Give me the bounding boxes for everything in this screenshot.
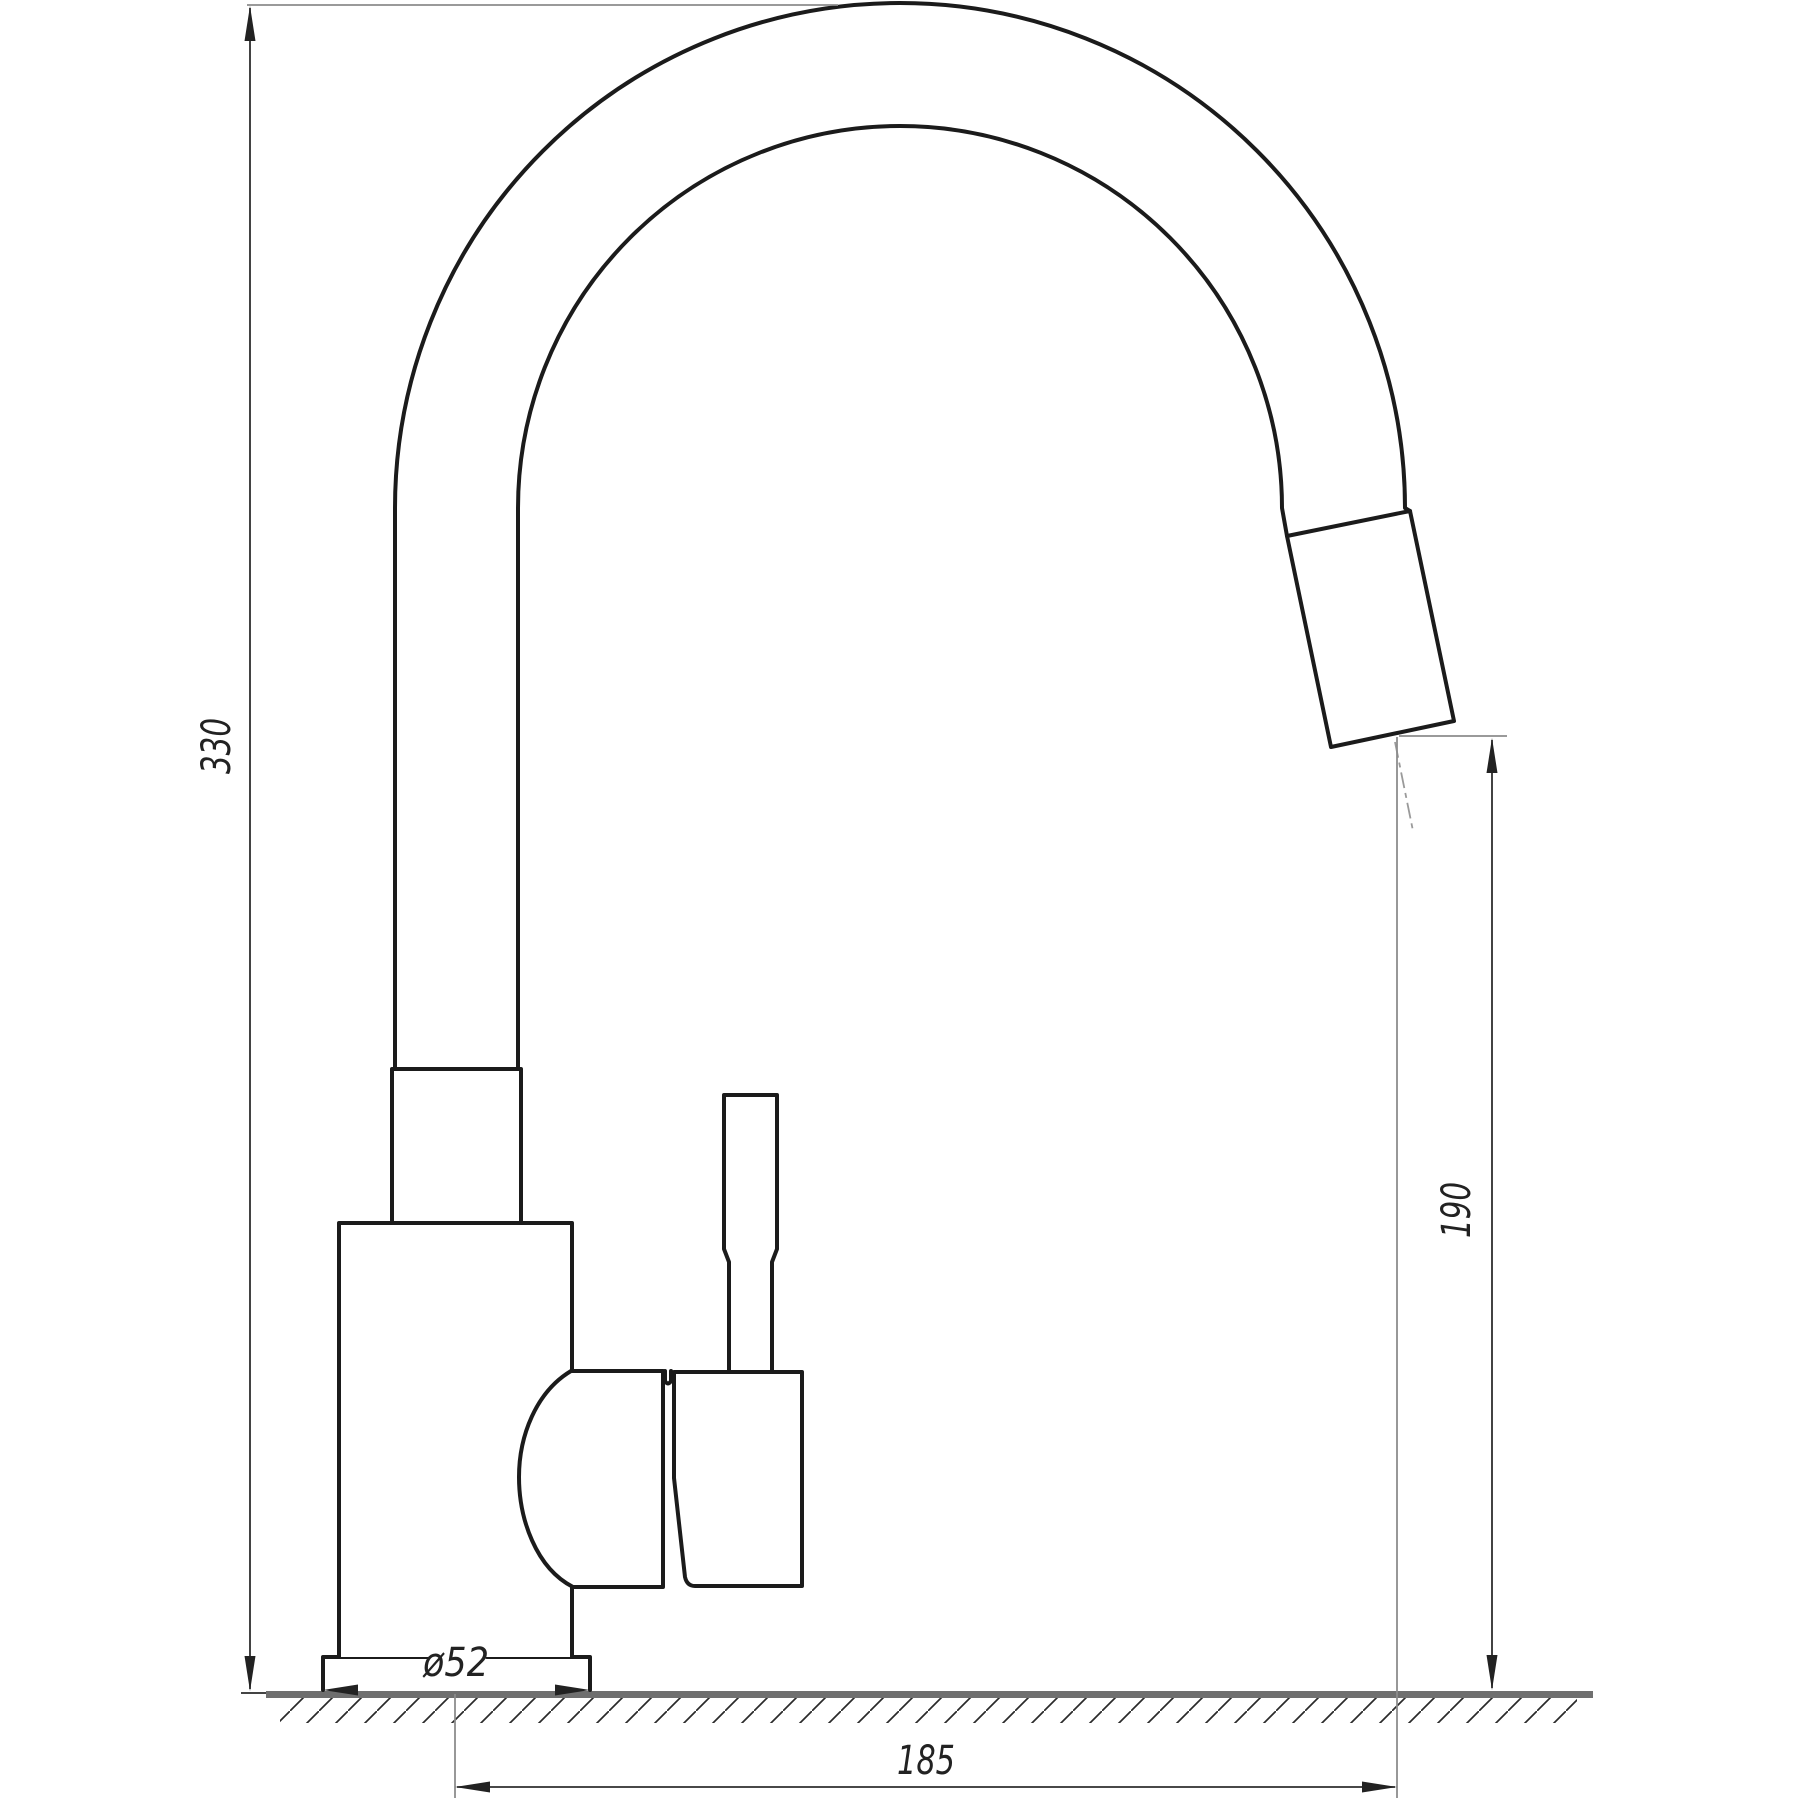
faucet-technical-drawing: 330 190 185 ø52 — [0, 0, 1800, 1800]
dim-label-190: 190 — [1434, 1182, 1480, 1238]
faucet-outline — [323, 3, 1454, 1690]
arrowhead-330-bottom — [245, 1656, 256, 1691]
valve-ball — [519, 1371, 663, 1587]
ground-hatching — [280, 1694, 1577, 1723]
spray-head — [1287, 511, 1454, 747]
arrowhead-190-bottom — [1487, 1655, 1498, 1690]
base-flange-left — [323, 1657, 427, 1690]
base-flange-right — [487, 1657, 590, 1690]
spout-inner-edge — [518, 126, 1287, 1069]
dim-label-185: 185 — [897, 1738, 955, 1784]
mounting-surface — [241, 1693, 1593, 1723]
dim-label-diameter: ø52 — [422, 1640, 489, 1686]
handle-pivot-stem — [665, 1371, 671, 1384]
arrowhead-185-left — [455, 1782, 490, 1793]
drawing-canvas: 330 190 185 ø52 — [0, 0, 1800, 1800]
dim-label-330: 330 — [194, 718, 240, 774]
collar-nut — [392, 1069, 521, 1223]
handle-base — [674, 1372, 802, 1586]
dimension-spout-reach: 185 — [455, 1738, 1397, 1793]
arrowhead-185-right — [1362, 1782, 1397, 1793]
arrowhead-330-top — [245, 6, 256, 41]
arrowhead-190-top — [1487, 738, 1498, 773]
dimension-overall-height: 330 — [194, 6, 256, 1691]
dimension-outlet-height: 190 — [1434, 738, 1498, 1690]
handle-lever — [724, 1095, 777, 1372]
spout-outer-edge — [395, 3, 1410, 1069]
